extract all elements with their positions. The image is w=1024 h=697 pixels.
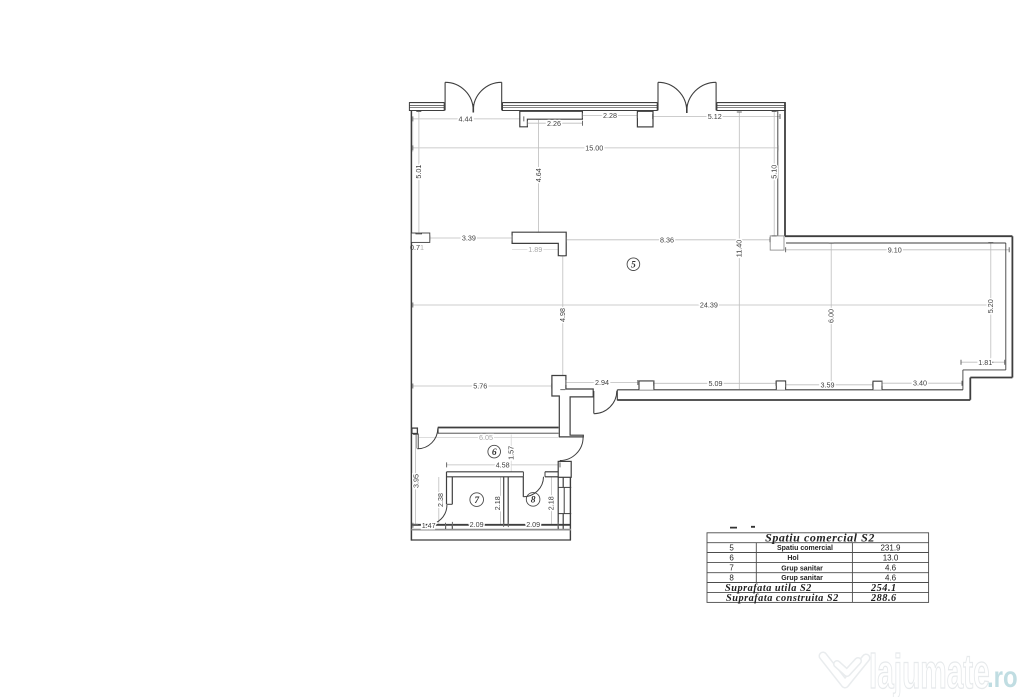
svg-text:7: 7 [729, 564, 734, 573]
svg-text:2.26: 2.26 [547, 119, 561, 128]
svg-text:2.94: 2.94 [595, 378, 609, 387]
svg-text:6.05: 6.05 [479, 433, 493, 442]
svg-text:4.6: 4.6 [885, 573, 897, 582]
svg-text:4.64: 4.64 [534, 168, 543, 182]
svg-text:1.81: 1.81 [978, 358, 992, 367]
svg-text:8.36: 8.36 [660, 235, 674, 244]
svg-text:13.0: 13.0 [883, 553, 899, 562]
svg-text:3.39: 3.39 [462, 234, 476, 243]
svg-text:4.6: 4.6 [885, 564, 897, 573]
svg-text:1.89: 1.89 [528, 245, 542, 254]
svg-text:2.28: 2.28 [603, 111, 617, 120]
svg-text:5: 5 [729, 543, 734, 552]
svg-text:4.98: 4.98 [558, 308, 567, 322]
svg-text:5.10: 5.10 [769, 165, 778, 179]
svg-text:2.18: 2.18 [546, 496, 555, 510]
svg-text:11.40: 11.40 [735, 240, 744, 257]
svg-text:0.71: 0.71 [410, 243, 424, 252]
svg-text:Grup sanitar: Grup sanitar [781, 575, 823, 582]
svg-text:231.9: 231.9 [880, 543, 901, 552]
svg-text:2.09: 2.09 [526, 520, 540, 529]
svg-text:5.76: 5.76 [473, 381, 487, 390]
svg-text:6: 6 [492, 448, 497, 458]
svg-text:5.09: 5.09 [709, 379, 723, 388]
svg-text:.ro: .ro [987, 659, 1018, 693]
svg-text:6: 6 [729, 553, 734, 562]
svg-text:5: 5 [631, 260, 636, 270]
svg-text:5.20: 5.20 [986, 299, 995, 313]
svg-text:Spatiu comercial S2: Spatiu comercial S2 [765, 531, 875, 545]
svg-text:6.00: 6.00 [826, 309, 835, 323]
svg-text:4.58: 4.58 [496, 460, 510, 469]
svg-text:2.09: 2.09 [470, 520, 484, 529]
svg-text:9.10: 9.10 [888, 245, 902, 254]
svg-text:8: 8 [531, 496, 536, 506]
svg-text:1.57: 1.57 [506, 446, 515, 460]
svg-text:5.12: 5.12 [708, 112, 722, 121]
svg-text:5.01: 5.01 [414, 165, 423, 179]
svg-text:8: 8 [729, 573, 734, 582]
svg-text:15.00: 15.00 [585, 144, 603, 153]
svg-text:4.44: 4.44 [459, 115, 473, 124]
svg-text:2.18: 2.18 [493, 496, 502, 510]
svg-text:2.38: 2.38 [436, 493, 445, 507]
svg-text:Suprafata construita S2: Suprafata construita S2 [726, 593, 839, 604]
svg-text:Spatiu comercial: Spatiu comercial [777, 545, 833, 552]
svg-text:288.6: 288.6 [870, 593, 897, 604]
svg-text:Grup sanitar: Grup sanitar [781, 565, 823, 572]
svg-text:lajumate: lajumate [869, 646, 990, 697]
svg-text:1.47: 1.47 [422, 521, 436, 530]
svg-text:3.59: 3.59 [821, 380, 835, 389]
svg-text:3.95: 3.95 [412, 474, 421, 488]
svg-text:3.40: 3.40 [913, 379, 927, 388]
svg-text:Hol: Hol [787, 555, 798, 562]
svg-text:24.39: 24.39 [700, 301, 718, 310]
